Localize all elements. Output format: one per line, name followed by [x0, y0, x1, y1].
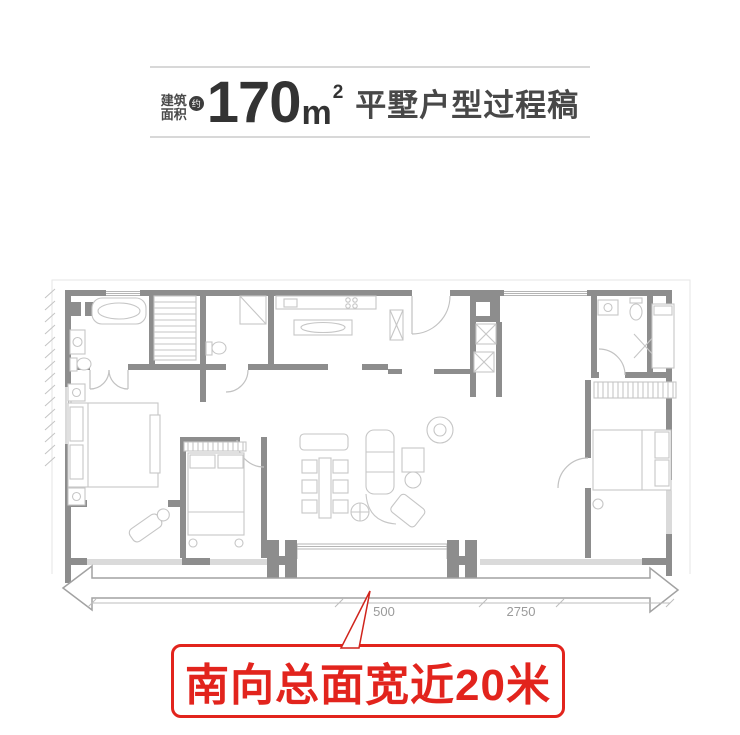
- area-label: 建筑 面积: [161, 94, 187, 122]
- party-wall-hatch: [45, 289, 55, 466]
- area-value: 170: [207, 80, 301, 126]
- area-label-line1: 建筑: [161, 94, 187, 108]
- floor-plan: 500 2750: [42, 272, 702, 622]
- area-label-line2: 面积: [161, 108, 187, 122]
- south-width-text: 南向总面宽近20米: [185, 649, 551, 713]
- floorplan-poster: 建筑 面积 约 170 m 2 平墅户型过程稿: [0, 0, 740, 735]
- furniture-layer: [68, 296, 676, 547]
- area-superscript: 2: [333, 83, 344, 102]
- approx-badge: 约: [189, 96, 204, 111]
- area-unit: m: [301, 100, 331, 127]
- page-title: 平墅户型过程稿: [355, 80, 579, 125]
- dimension-label-2750: 2750: [507, 604, 536, 619]
- south-width-callout: 南向总面宽近20米: [171, 644, 565, 718]
- title-block: 建筑 面积 约 170 m 2 平墅户型过程稿: [150, 66, 590, 138]
- approx-text: 约: [192, 97, 201, 110]
- callout-leader: [330, 584, 380, 650]
